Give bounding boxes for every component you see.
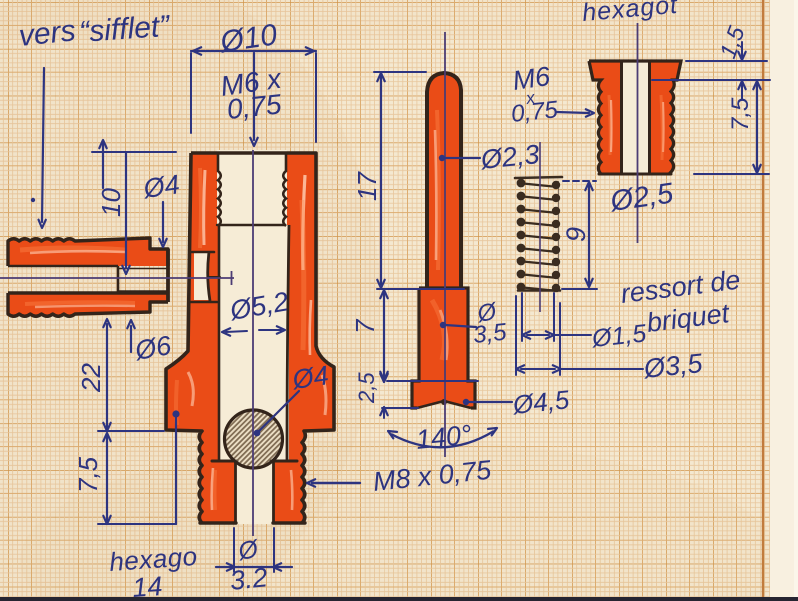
svg-text:9: 9 bbox=[561, 227, 591, 242]
svg-text:Ø3,5: Ø3,5 bbox=[641, 348, 704, 384]
svg-text:10: 10 bbox=[96, 188, 126, 217]
svg-text:0,75: 0,75 bbox=[510, 96, 560, 128]
svg-text:7: 7 bbox=[350, 318, 380, 334]
svg-text:“sifflet”: “sifflet” bbox=[78, 10, 172, 49]
svg-text:17: 17 bbox=[352, 171, 382, 201]
svg-text:Ø2,3: Ø2,3 bbox=[478, 139, 540, 175]
svg-text:7,5: 7,5 bbox=[727, 97, 754, 131]
svg-text:vers: vers bbox=[17, 14, 77, 53]
svg-text:Ø4,5: Ø4,5 bbox=[510, 384, 571, 420]
svg-text:Ø4: Ø4 bbox=[290, 360, 331, 395]
svg-text:7,5: 7,5 bbox=[73, 456, 103, 493]
svg-text:3.2: 3.2 bbox=[228, 562, 268, 596]
svg-text:140°: 140° bbox=[414, 419, 473, 455]
svg-text:14: 14 bbox=[131, 571, 163, 601]
svg-text:Ø4: Ø4 bbox=[141, 169, 182, 204]
svg-text:3,5: 3,5 bbox=[472, 319, 509, 349]
svg-text:22: 22 bbox=[76, 363, 106, 393]
svg-text:2,5: 2,5 bbox=[354, 372, 379, 404]
svg-text:Ø1,5: Ø1,5 bbox=[590, 319, 648, 353]
